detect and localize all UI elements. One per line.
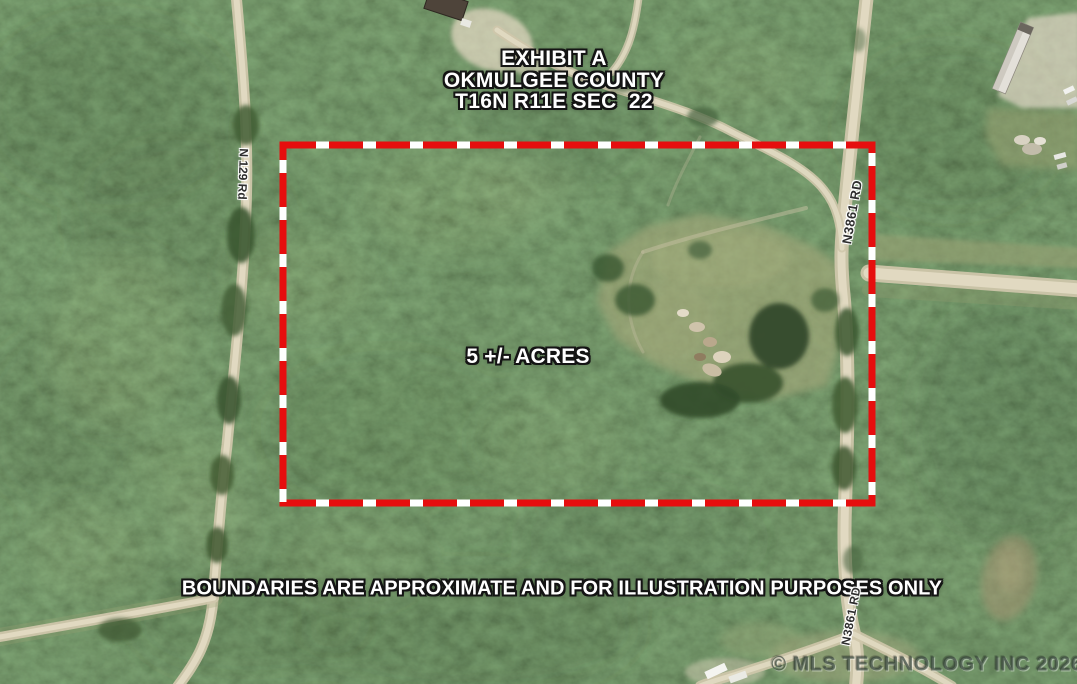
- aerial-property-map: EXHIBIT A OKMULGEE COUNTY T16N R11E SEC …: [0, 0, 1077, 684]
- forest-grain: [0, 0, 1077, 684]
- satellite-imagery: [0, 0, 1077, 684]
